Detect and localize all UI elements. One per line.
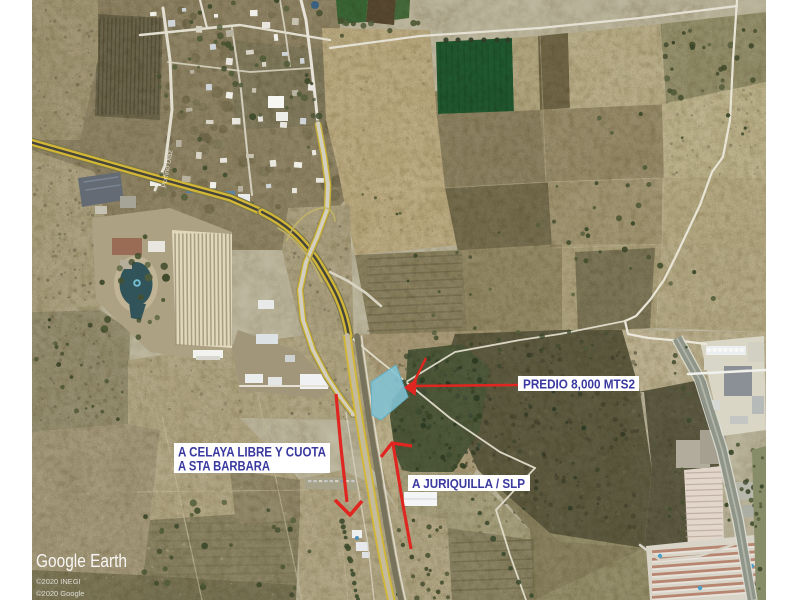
svg-text:©2020 INEGI: ©2020 INEGI xyxy=(36,577,81,586)
svg-text:A JURIQUILLA / SLP: A JURIQUILLA / SLP xyxy=(412,476,525,491)
svg-text:A STA BARBARA: A STA BARBARA xyxy=(178,459,270,474)
svg-text:A CELAYA LIBRE Y CUOTA: A CELAYA LIBRE Y CUOTA xyxy=(178,445,326,460)
svg-text:PREDIO 8,000 MTS2: PREDIO 8,000 MTS2 xyxy=(523,377,635,392)
svg-text:©2020 Google: ©2020 Google xyxy=(36,589,84,598)
svg-text:Google Earth: Google Earth xyxy=(36,550,127,571)
